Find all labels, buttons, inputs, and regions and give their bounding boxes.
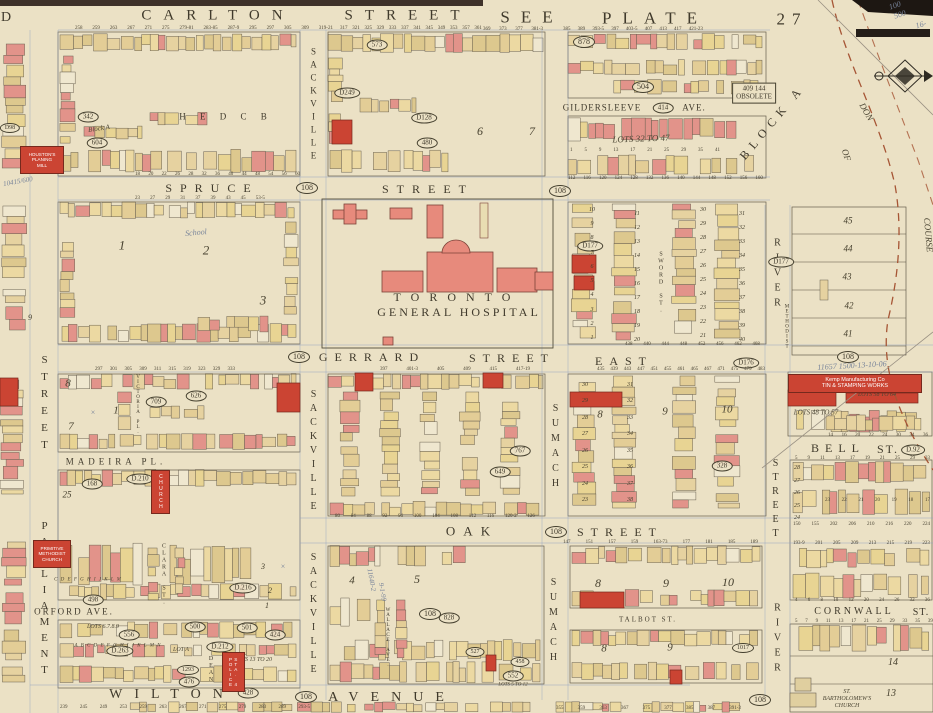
house-number: 56 — [282, 172, 287, 177]
lot-number-4: 4 — [591, 292, 594, 298]
house-number: 185 — [728, 540, 736, 545]
house-number: 32 — [910, 598, 915, 603]
plate-ref-D.92: D.92 — [901, 445, 925, 456]
plate-ref-626: 626 — [186, 391, 207, 402]
plate-ref-D128: D128 — [411, 113, 437, 124]
house-number: 271 — [199, 705, 207, 710]
house-number: 32 — [202, 172, 207, 177]
address-strip: 258259263267271275279-81283-85287-929529… — [75, 26, 333, 31]
house-number: 159 — [631, 540, 639, 545]
church: CHURCH — [151, 470, 170, 514]
house-number: 9 — [599, 148, 602, 153]
plate-ref-552: 552 — [503, 671, 524, 682]
house-number: 13 — [838, 619, 843, 624]
house-number: 53-5 — [256, 196, 265, 201]
building-label-line: STA. 4 — [233, 657, 238, 687]
lot-number-8: 8 — [591, 235, 594, 241]
house-number: 24 — [879, 598, 884, 603]
address-strip: 317321325329333337341345349353357361 — [340, 26, 482, 31]
house-number: 206 — [849, 522, 857, 527]
house-number: 359 — [578, 706, 586, 711]
house-number: 267 — [127, 26, 135, 31]
house-number: 363 — [599, 706, 607, 711]
house-number: 295 — [249, 26, 257, 31]
house-number: 17 — [925, 498, 930, 503]
house-number: 279-81 — [179, 26, 193, 31]
house-number: 259 — [139, 705, 147, 710]
plate-ref-108: 108 — [549, 185, 571, 197]
house-number: 177 — [683, 540, 691, 545]
lot-number-25: 25 — [63, 491, 72, 500]
house-number: 25 — [877, 619, 882, 624]
plate-ref-168: 168 — [82, 479, 103, 490]
plate-ref-424: 424 — [265, 630, 286, 641]
annotation-note: 16- — [915, 20, 928, 31]
house-number: 13 — [613, 148, 618, 153]
address-strip: 23222120191817 — [825, 498, 930, 503]
house-number: 112 — [469, 514, 476, 519]
lot-number-38: 38 — [627, 497, 633, 503]
house-number: 13 — [835, 456, 840, 461]
street-oak-2: STREET — [577, 526, 663, 538]
house-number: 14 — [828, 433, 833, 438]
plate-ref-767: 767 — [510, 446, 531, 457]
house-number: 205 — [833, 541, 841, 546]
annotation-note: LOTS 5 TO 12 — [498, 683, 527, 688]
plate-ref-108: 108 — [296, 182, 318, 194]
lot-number-18: 18 — [634, 309, 640, 315]
lot-number-20: 20 — [634, 337, 640, 343]
lot-number-30: 30 — [582, 382, 588, 388]
house-number: 18 — [135, 172, 140, 177]
lot-number-6: 6 — [477, 125, 483, 137]
house-number: 283 — [259, 705, 267, 710]
street-gerrard: GERRARD — [319, 351, 425, 363]
police-station-4: POLICESTA. 4 — [222, 652, 245, 692]
house-number: 21 — [864, 619, 869, 624]
obsolete-box: 409 144OBSOLETE — [732, 83, 776, 104]
house-number: 19 — [892, 498, 897, 503]
plate-ref-108: 108 — [749, 694, 771, 706]
lot-number-37: 37 — [627, 481, 633, 487]
street-wallace: WALLACE AVE. — [386, 608, 391, 668]
house-number: 28 — [188, 172, 193, 177]
house-number: 136 — [662, 176, 670, 181]
lot-number-21: 21 — [700, 333, 706, 339]
lot-number-3: 3 — [260, 294, 267, 307]
lot-number-8: 8 — [65, 379, 71, 390]
address-strip: 147151157159163-73177181185189 — [563, 540, 758, 545]
lot-number-1: 1 — [113, 406, 119, 417]
street-wilton: WILTON — [109, 688, 235, 702]
lot-number-2: 2 — [591, 321, 594, 327]
lot-number-5: 5 — [591, 278, 594, 284]
plate-ref-649: 649 — [490, 467, 511, 478]
lot-number-28: 28 — [700, 235, 706, 241]
house-number: 403-5 — [626, 27, 638, 32]
plate-ref-328: 328 — [712, 461, 733, 472]
house-number: 209 — [851, 541, 859, 546]
plate-ref-108: 108 — [288, 351, 310, 363]
house-number: 156 — [740, 176, 748, 181]
lot-letters-row: H E D C B — [179, 113, 273, 122]
lot-number-7: 7 — [591, 250, 594, 256]
house-number: 275 — [219, 705, 227, 710]
street-wilton-2: AVENUE — [328, 691, 456, 705]
house-number: 223 — [922, 541, 930, 546]
house-number: 389 — [578, 27, 586, 32]
house-number: 9 — [808, 456, 811, 461]
lot-number-39: 39 — [739, 323, 745, 329]
lot-number-36: 36 — [739, 281, 745, 287]
house-number: 361 — [474, 26, 482, 31]
house-number: 17 — [630, 148, 635, 153]
house-number: 5 — [584, 148, 587, 153]
house-number: 435 — [597, 367, 605, 372]
house-number: 440 — [643, 342, 651, 347]
house-number: 220 — [904, 522, 912, 527]
street-river-b: RIVER — [772, 603, 782, 678]
address-strip: 1416202224303436 — [828, 433, 928, 438]
house-number: 202 — [830, 522, 838, 527]
house-number: 8 — [821, 598, 824, 603]
lot-number-5: 5 — [414, 573, 420, 585]
house-number: 475 — [731, 367, 739, 372]
house-number: 387 — [708, 706, 716, 711]
annotation-note: LOTS 32 TO 47 — [612, 134, 669, 145]
lot-number-14: 14 — [888, 658, 898, 668]
annotation-note: 10415/600 — [3, 176, 34, 188]
street-sumach-b: SUMACH — [548, 577, 558, 667]
annotation-note: DON — [857, 102, 874, 123]
address-strip: 112116120124128132136140144148152156160 — [568, 176, 763, 181]
lot-number-31: 31 — [627, 382, 633, 388]
lot-number-8: 8 — [601, 644, 607, 655]
house-number: 345 — [426, 26, 434, 31]
house-number: 283-85 — [204, 26, 218, 31]
street-gildersleeve: GILDERSLEEVE — [563, 104, 642, 113]
house-number: 20 — [855, 433, 860, 438]
house-number: 369 — [483, 27, 491, 32]
house-number: 319-21 — [319, 26, 333, 31]
plate-ref-480: 480 — [417, 138, 438, 149]
lot-number-10: 10 — [589, 207, 595, 213]
street-spruce: SPRUCE — [165, 182, 258, 194]
street-sumach-a: SUMACH — [550, 403, 560, 493]
house-number: 357 — [462, 26, 470, 31]
house-number: 297 — [267, 26, 275, 31]
house-number: 443 — [624, 367, 632, 372]
house-number: 439 — [610, 367, 618, 372]
annotation-note: 500 — [893, 9, 907, 20]
annotation-note: COURSE — [922, 217, 933, 252]
lot-number-28: 28 — [794, 465, 800, 471]
lot-number-22: 22 — [700, 319, 706, 325]
house-number: 152 — [724, 176, 732, 181]
building-label-line: TIN & STAMPING WORKS — [822, 383, 888, 389]
house-number: 438 — [625, 342, 633, 347]
lot-number-43: 43 — [843, 273, 852, 282]
lot-number-27: 27 — [794, 478, 800, 484]
lot-number-8: 8 — [597, 410, 603, 421]
lot-number-24: 24 — [794, 515, 800, 521]
lot-number-7: 7 — [68, 422, 74, 433]
lot-number-33: 33 — [739, 239, 745, 245]
house-number: 263 — [159, 705, 167, 710]
house-number: 321 — [352, 26, 360, 31]
plate-ref-709: 709 — [146, 397, 167, 408]
address-strip: 193-9201205209213215219223 — [793, 541, 930, 546]
house-number: 140 — [677, 176, 685, 181]
lot-number-17: 17 — [634, 295, 640, 301]
building-label-line: CHURCH — [157, 474, 163, 510]
lot-number-34: 34 — [739, 253, 745, 259]
house-number: 415 — [489, 367, 497, 372]
map-canvas: DCARLTONSTREETSEEPLATE27SPRUCESTREETGERR… — [0, 0, 933, 713]
plate-ref-458: 458 — [511, 657, 530, 667]
lot-number-16: 16 — [634, 281, 640, 287]
house-number: 45 — [241, 196, 246, 201]
plate-ref-878: 878 — [573, 36, 595, 48]
house-number: 367 — [621, 706, 629, 711]
house-number: 471 — [717, 367, 725, 372]
lot-number-41: 41 — [844, 330, 853, 339]
lot-number-25: 25 — [582, 464, 588, 470]
lot-number-2: 2 — [268, 587, 272, 595]
house-number: 36 — [215, 172, 220, 177]
house-number: 22 — [842, 498, 847, 503]
address-strip: 579111317212529333539 — [795, 619, 933, 624]
house-number: 112 — [568, 176, 575, 181]
lot-number-31: 31 — [739, 211, 745, 217]
house-number: 452 — [698, 342, 706, 347]
lot-number-27: 27 — [700, 249, 706, 255]
lot-number-12: 12 — [634, 225, 640, 231]
house-number: 23 — [135, 196, 140, 201]
house-number: 319 — [183, 367, 191, 372]
house-number: 375 — [643, 706, 651, 711]
street-talbot: TALBOT ST. — [619, 617, 677, 624]
lot-number-25: 25 — [700, 277, 706, 283]
house-number: 9 — [816, 619, 819, 624]
house-number: 5 — [795, 456, 798, 461]
lot-number-38: 38 — [739, 309, 745, 315]
street-sackville-c: SACKVILLE — [308, 552, 318, 678]
house-number: 11 — [820, 456, 825, 461]
house-number: 337 — [401, 26, 409, 31]
house-number: 275 — [162, 26, 170, 31]
house-number: 479 — [744, 367, 752, 372]
house-number: 128 — [630, 176, 638, 181]
methodist-church-note: METHODIST — [785, 305, 790, 350]
see-plate-note: SEE — [500, 9, 563, 26]
house-number: 333 — [227, 367, 235, 372]
annotation-note: 11640-2 — [366, 568, 377, 592]
house-number: 385 — [686, 706, 694, 711]
lot-number-1: 1 — [591, 335, 594, 341]
house-number: 124 — [615, 176, 623, 181]
lot-number-15: 15 — [634, 267, 640, 273]
house-number: 16 — [842, 433, 847, 438]
street-sackville-a: SACKVILLE — [309, 47, 318, 164]
street-river-2: STREET — [770, 458, 780, 542]
house-number: 44 — [242, 172, 247, 177]
lot-number-23: 23 — [582, 497, 588, 503]
house-number: 271 — [145, 26, 153, 31]
lot-number-11: 11 — [634, 211, 640, 217]
street-madeira: MADEIRA PL. — [66, 458, 167, 467]
lot-number-26: 26 — [700, 263, 706, 269]
house-number: 451 — [651, 367, 659, 372]
house-number: 37 — [195, 196, 200, 201]
address-strip: 385389393-5397403-5407413417421-23 — [563, 27, 703, 32]
plate-ref-500: 500 — [185, 622, 206, 633]
house-number: 216 — [886, 522, 894, 527]
house-number: 245 — [80, 705, 88, 710]
primitive-methodist-church: PRIMITIVEMETHODISTCHURCH — [33, 540, 71, 568]
address-strip: 397401-3405409415417-19 — [380, 367, 530, 372]
lot-number-28: 28 — [582, 415, 588, 421]
house-number: 29 — [681, 148, 686, 153]
address-strip: 18202226283236404448545660 — [135, 172, 300, 177]
house-number: 385 — [563, 27, 571, 32]
house-number: 7 — [805, 619, 808, 624]
house-number: 120 — [599, 176, 607, 181]
house-number: 60 — [295, 172, 300, 177]
lot-number-13: 13 — [634, 239, 640, 245]
house-number: 92 — [382, 514, 387, 519]
house-number: 401-3 — [406, 367, 418, 372]
house-number: 311 — [154, 367, 161, 372]
plate-ref-108: 108 — [545, 526, 567, 538]
address-strip: 232729313739434553-5 — [135, 196, 265, 201]
house-number: 100 — [414, 514, 422, 519]
annotation-note: Block A — [88, 124, 111, 134]
houstons-mill: HOUSTON'SPLANINGMILL — [20, 146, 64, 174]
annotation-note: 9-1-99 — [377, 582, 387, 602]
lot-number-9: 9 — [662, 407, 668, 418]
plate-ref-573: 573 — [367, 40, 388, 51]
lot-number-6: 6 — [591, 264, 594, 270]
lot-number-36: 36 — [627, 464, 633, 470]
house-number: 39 — [928, 619, 933, 624]
street-fragment: D — [1, 11, 11, 25]
lot-number-24: 24 — [700, 291, 706, 297]
plate-ref-D98: D98 — [0, 123, 20, 133]
house-number: 417 — [674, 27, 682, 32]
house-number: 10 — [833, 598, 838, 603]
plate-ref-108: 108 — [295, 691, 317, 703]
house-number: 456 — [716, 342, 724, 347]
plate-ref-504: 504 — [632, 81, 654, 93]
lot-number-3: 3 — [591, 307, 594, 313]
house-number: 116 — [487, 514, 494, 519]
house-number: 417-19 — [516, 367, 530, 372]
house-number: 353 — [450, 26, 458, 31]
kemp-manufacturing: Kemp Manufacturing CoTIN & STAMPING WORK… — [788, 374, 922, 393]
street-oak: OAK — [446, 525, 498, 538]
house-number: 465 — [691, 367, 699, 372]
lot-number-34: 34 — [627, 431, 633, 437]
house-number: 22 — [869, 433, 874, 438]
plate-ref-414: 414 — [653, 103, 674, 114]
house-number: 461 — [677, 367, 685, 372]
house-number: 26 — [175, 172, 180, 177]
house-number: 377 — [515, 27, 523, 32]
house-number: 17 — [851, 619, 856, 624]
house-number: 210 — [867, 522, 875, 527]
lot-number-25: 25 — [794, 503, 800, 509]
house-number: 21 — [858, 498, 863, 503]
house-number: 22 — [162, 172, 167, 177]
house-number: 54 — [268, 172, 273, 177]
lot-number-4: 4 — [349, 576, 355, 587]
house-number: 157 — [608, 540, 616, 545]
address-strip: 46810122024263236 — [795, 598, 930, 603]
house-number: 355 — [556, 706, 564, 711]
plate-ref-1293: 1293 — [177, 665, 199, 675]
street-gerrard-2: STREET — [469, 352, 555, 364]
house-number: 20 — [148, 172, 153, 177]
annotation-note: LOTS 58 TO 64 — [858, 392, 896, 398]
lot-number-40: 40 — [739, 337, 745, 343]
house-number: 309 — [139, 367, 147, 372]
house-number: 33 — [902, 619, 907, 624]
annotation-note: School — [185, 228, 207, 238]
house-number: 151 — [586, 540, 594, 545]
house-number: 215 — [887, 541, 895, 546]
plate-ref-D.216: D.216 — [229, 583, 256, 594]
lot-number-29: 29 — [700, 221, 706, 227]
house-number: 41 — [715, 148, 720, 153]
house-number: 444 — [661, 342, 669, 347]
house-number: 116 — [583, 176, 590, 181]
lot-number-9: 9 — [28, 314, 32, 322]
house-number: 21 — [880, 456, 885, 461]
plate-ref-501: 501 — [237, 623, 258, 634]
house-number: 17 — [850, 456, 855, 461]
house-number: 84 — [351, 514, 356, 519]
house-number: 29 — [165, 196, 170, 201]
lot-number-9: 9 — [667, 643, 673, 654]
address-strip: 150155202206210216220224 — [793, 522, 930, 527]
address-strip: 8084889296100104108112116120-2126 — [335, 514, 535, 519]
house-number: 421-23 — [689, 27, 703, 32]
house-number: 163-73 — [653, 540, 667, 545]
see-plate-number: 27 — [777, 11, 808, 28]
lot-number-10: 10 — [722, 405, 733, 416]
lot-number-26: 26 — [794, 490, 800, 496]
house-number: 35 — [698, 148, 703, 153]
lot-number-45: 45 — [844, 217, 853, 226]
house-number: 329 — [377, 26, 385, 31]
house-number: 120-2 — [505, 514, 517, 519]
lot-number-44: 44 — [844, 245, 853, 254]
house-number: 148 — [708, 176, 716, 181]
house-number: 25 — [895, 456, 900, 461]
plate-ref-108: 108 — [419, 608, 441, 620]
lot-number-33: 33 — [627, 415, 633, 421]
lot-number-9: 9 — [591, 221, 594, 227]
house-number: 36 — [923, 433, 928, 438]
street-gildersleeve-2: AVE. — [682, 104, 706, 113]
address-strip: 15913172125293541 — [570, 148, 720, 153]
house-number: 26 — [894, 598, 899, 603]
house-number: 6 — [808, 598, 811, 603]
house-number: 333 — [389, 26, 397, 31]
house-number: 258 — [75, 26, 83, 31]
house-number: 305 — [284, 26, 292, 31]
